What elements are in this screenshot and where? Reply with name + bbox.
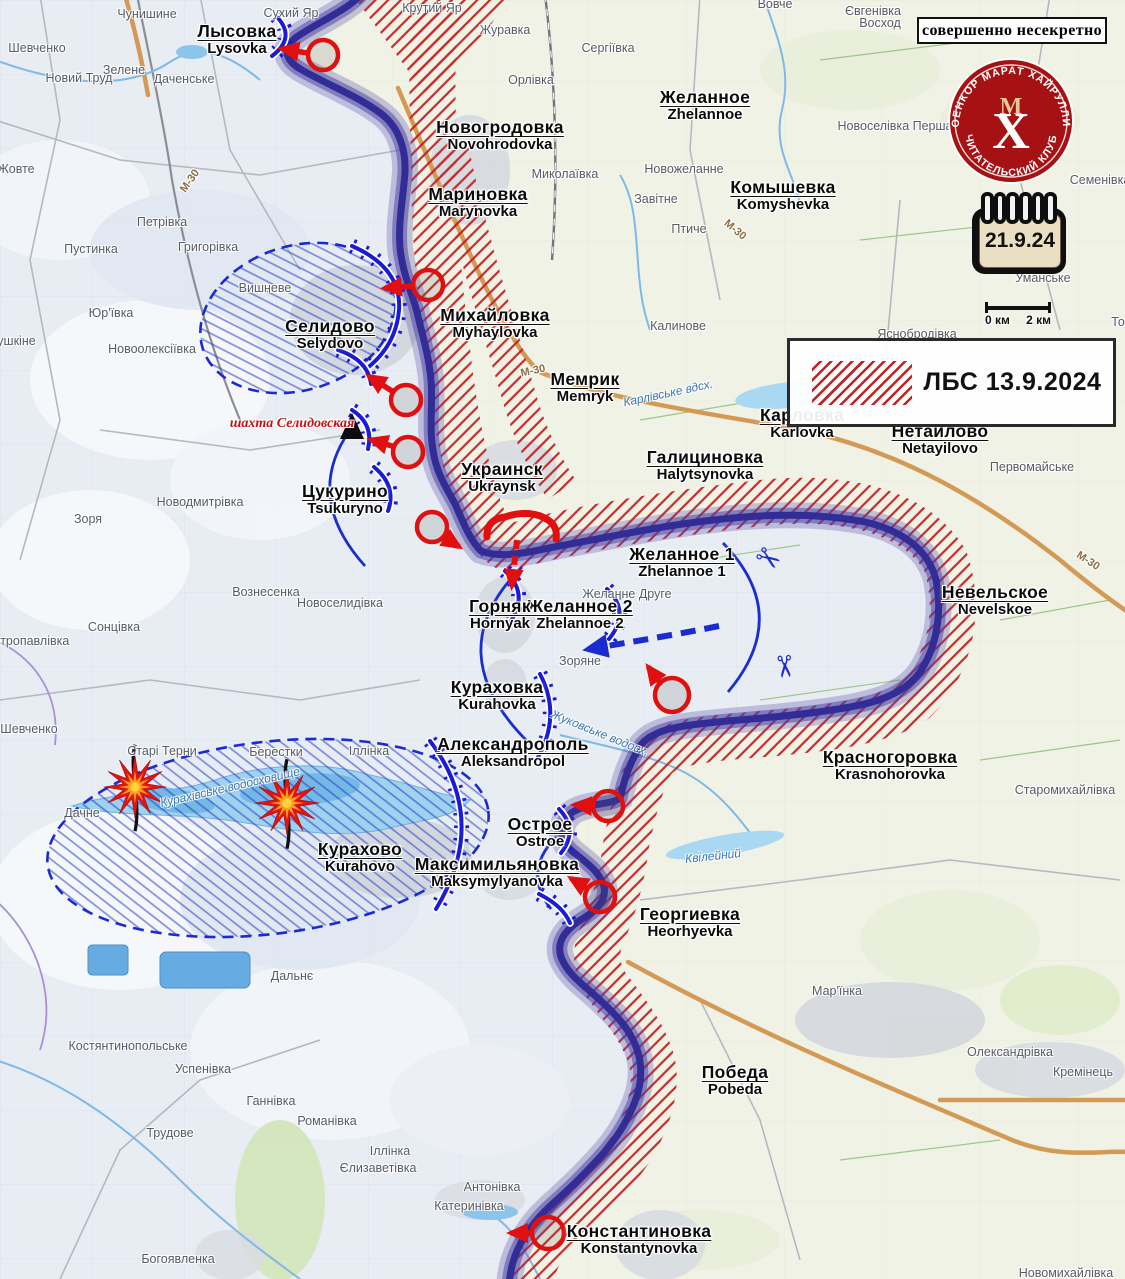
calendar-rings — [981, 192, 1057, 224]
classification-banner: совершенно несекретно — [917, 17, 1107, 44]
scale-bar-line — [985, 306, 1051, 310]
club-logo: ВОЕНКОР МАРАТ ХАЙРУЛЛИН • ЧИТАТЕЛЬСКИЙ К… — [946, 56, 1076, 186]
map-graphics: ✂ ✂ — [0, 0, 1125, 1279]
logo-monogram-m: М — [1000, 94, 1023, 120]
legend-hatch-swatch — [812, 361, 912, 405]
legend-box: ЛБС 13.9.2024 — [787, 338, 1116, 427]
scale-start: 0 км — [985, 313, 1010, 327]
scale-end: 2 км — [1026, 313, 1051, 327]
legend-label: ЛБС 13.9.2024 — [912, 368, 1113, 397]
scissors-icon: ✂ — [765, 653, 802, 681]
mine-label: шахта Селидовская — [230, 416, 355, 432]
date-calendar-icon: 21.9.24 — [972, 192, 1066, 276]
war-map-canvas: ✂ ✂ ЛысовкаLysovkaНовогродовкаNovohrodov… — [0, 0, 1125, 1279]
scale-bar: 0 км 2 км — [985, 306, 1051, 327]
